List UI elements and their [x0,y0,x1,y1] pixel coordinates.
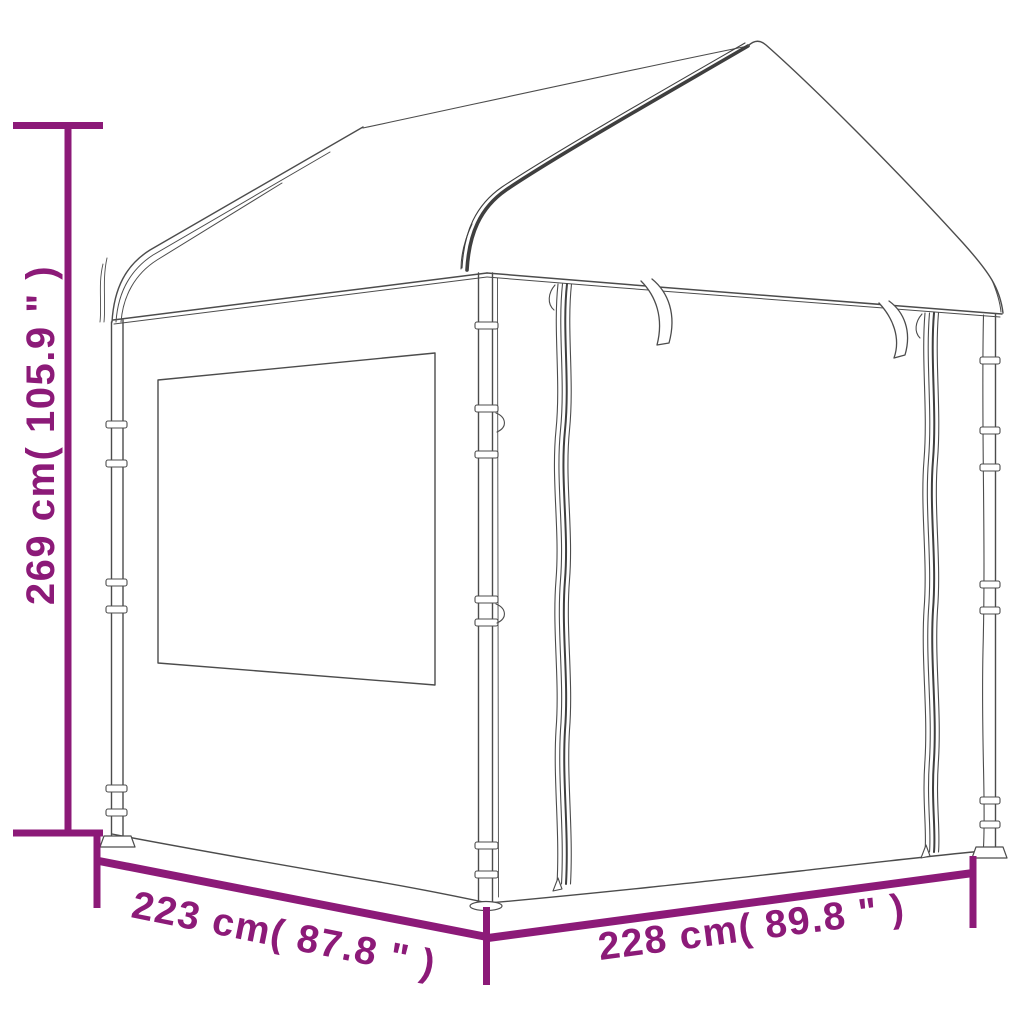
roof-ridge-line [363,46,748,128]
tie-strap-left [641,279,672,345]
gazebo-line-drawing [100,41,1007,910]
zipper-middle [549,284,571,891]
zipper-right [916,313,939,858]
front-wall-bottom-edge [489,851,983,903]
left-post [100,320,135,847]
roof-rear-hip-edge [100,127,363,322]
diagram-canvas: 269 cm( 105.9 " ) 223 cm( 87.8 " ) 228 c… [0,0,1024,1024]
height-dimension-label: 269 cm( 105.9 " ) [19,265,63,605]
left-wall-top-edge [113,273,487,324]
roof-front-gable-seam [461,43,748,270]
window-panel [158,353,435,685]
right-post [972,314,1007,858]
center-post [470,273,504,911]
gazebo-dimension-diagram: 269 cm( 105.9 " ) 223 cm( 87.8 " ) 228 c… [0,0,1024,1024]
roof-front-gable-right-slope [748,41,1003,313]
front-wall-top-edge [487,273,1002,317]
